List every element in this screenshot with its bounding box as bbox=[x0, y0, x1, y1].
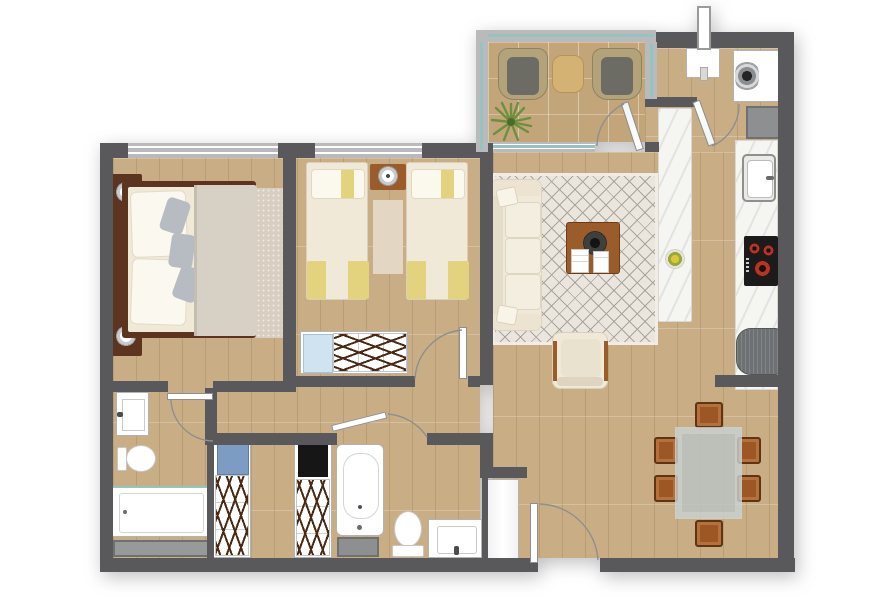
bedroom2-window bbox=[315, 143, 422, 158]
hanger-rail bbox=[333, 333, 407, 372]
wall bbox=[482, 478, 488, 560]
cooktop bbox=[744, 236, 778, 286]
ensuite-vanity-sink bbox=[116, 392, 149, 436]
yellow-blanket bbox=[307, 261, 369, 299]
master-bedroom-window bbox=[128, 143, 278, 158]
entry-door-leaf bbox=[530, 503, 538, 563]
drain bbox=[123, 510, 127, 514]
burner bbox=[749, 243, 760, 254]
wall bbox=[468, 376, 480, 387]
service-shaft bbox=[113, 540, 209, 557]
armchair-trim bbox=[553, 341, 557, 381]
wall bbox=[207, 445, 214, 558]
wall bbox=[100, 143, 113, 572]
hanger-rail bbox=[215, 475, 249, 556]
folded-clothes bbox=[217, 443, 249, 475]
wicker-chair bbox=[498, 48, 548, 100]
wall bbox=[422, 143, 480, 158]
wall bbox=[283, 158, 296, 385]
three-seat-sofa bbox=[490, 179, 542, 331]
wall bbox=[278, 143, 315, 158]
wicker-chair bbox=[592, 48, 642, 100]
partition-glass bbox=[650, 44, 653, 97]
wall bbox=[100, 558, 538, 572]
service-shaft bbox=[337, 537, 379, 557]
railing-glass bbox=[488, 34, 654, 37]
armchair-back bbox=[557, 377, 603, 386]
folded-clothes bbox=[303, 334, 333, 373]
master-double-bed bbox=[122, 181, 256, 338]
washer-drum bbox=[735, 56, 759, 96]
fruit-bowl bbox=[665, 249, 685, 269]
blanket bbox=[194, 185, 257, 336]
pillow bbox=[411, 169, 465, 199]
bathroom-toilet bbox=[394, 511, 422, 547]
glass-dining-table bbox=[675, 427, 742, 519]
basin bbox=[122, 399, 145, 431]
shower-tray bbox=[119, 493, 204, 533]
ensuite-toilet bbox=[126, 445, 156, 472]
wall bbox=[655, 32, 794, 48]
pillow bbox=[311, 169, 365, 199]
wall bbox=[217, 433, 337, 445]
kitchen-sink bbox=[742, 154, 776, 202]
yellow-blanket bbox=[407, 261, 469, 299]
faucet bbox=[766, 176, 774, 180]
wall bbox=[480, 467, 527, 478]
seat-cushion bbox=[505, 202, 541, 238]
coffee-table bbox=[566, 222, 620, 274]
throw-pillow bbox=[496, 304, 519, 325]
terrace-window bbox=[493, 142, 595, 152]
wall bbox=[778, 32, 794, 572]
bathtub bbox=[336, 444, 384, 536]
accent-pillow bbox=[168, 232, 196, 269]
bathroom-toilet-tank bbox=[392, 545, 424, 557]
water-heater bbox=[686, 48, 720, 78]
railing-glass bbox=[480, 42, 483, 150]
chair-cushion bbox=[601, 57, 633, 95]
wall bbox=[645, 142, 659, 152]
dining-chair bbox=[695, 520, 723, 547]
wall bbox=[480, 143, 493, 385]
faucet bbox=[117, 412, 123, 417]
wall bbox=[113, 381, 168, 392]
table-lamp bbox=[378, 166, 398, 186]
pillow-fold bbox=[341, 170, 354, 198]
faucet bbox=[357, 525, 362, 530]
refrigerator bbox=[736, 328, 779, 375]
single-bed bbox=[406, 162, 468, 300]
vent-pipe bbox=[697, 6, 711, 50]
magazine bbox=[571, 249, 589, 273]
wall bbox=[296, 376, 415, 387]
magazine bbox=[593, 251, 609, 273]
wardrobe bbox=[213, 439, 251, 558]
hanger-rail bbox=[296, 479, 330, 556]
blanket-stripe bbox=[326, 261, 348, 299]
wall bbox=[213, 381, 296, 392]
wall bbox=[715, 375, 782, 387]
seat-cushion bbox=[505, 274, 541, 310]
pillow-fold bbox=[441, 170, 454, 198]
kitchen-island bbox=[658, 108, 692, 322]
entry-closet bbox=[487, 479, 519, 559]
bathroom-vanity-sink bbox=[428, 519, 482, 558]
bedroom2-wardrobe bbox=[300, 331, 408, 374]
armchair-seat bbox=[561, 339, 601, 377]
master-ensuite-door-leaf bbox=[167, 393, 213, 400]
burner bbox=[754, 260, 771, 277]
service-shaft bbox=[746, 106, 780, 139]
terrace-side-table bbox=[552, 55, 584, 93]
chair-cushion bbox=[507, 57, 539, 95]
seat-cushion bbox=[505, 238, 541, 274]
faucet bbox=[454, 546, 459, 555]
washing-machine bbox=[733, 50, 779, 102]
heater-pipe bbox=[700, 67, 708, 81]
bedroom2-runner-rug bbox=[373, 200, 403, 274]
floor-plan bbox=[0, 0, 890, 600]
armchair-trim bbox=[604, 341, 608, 381]
control-panel bbox=[746, 258, 749, 272]
burner bbox=[763, 245, 774, 256]
bedroom2-door-leaf bbox=[459, 327, 467, 379]
wall bbox=[480, 433, 493, 469]
blanket-stripe bbox=[426, 261, 448, 299]
wardrobe bbox=[294, 439, 332, 558]
drain bbox=[358, 505, 362, 509]
armchair bbox=[552, 332, 608, 389]
ensuite-shower bbox=[112, 486, 209, 537]
wall bbox=[600, 558, 795, 572]
apartment-building bbox=[0, 0, 890, 600]
tub-basin bbox=[343, 453, 379, 519]
potted-plant-icon bbox=[488, 100, 534, 144]
dining-chair bbox=[695, 402, 723, 428]
single-bed bbox=[306, 162, 368, 300]
folded-clothes bbox=[298, 443, 328, 477]
